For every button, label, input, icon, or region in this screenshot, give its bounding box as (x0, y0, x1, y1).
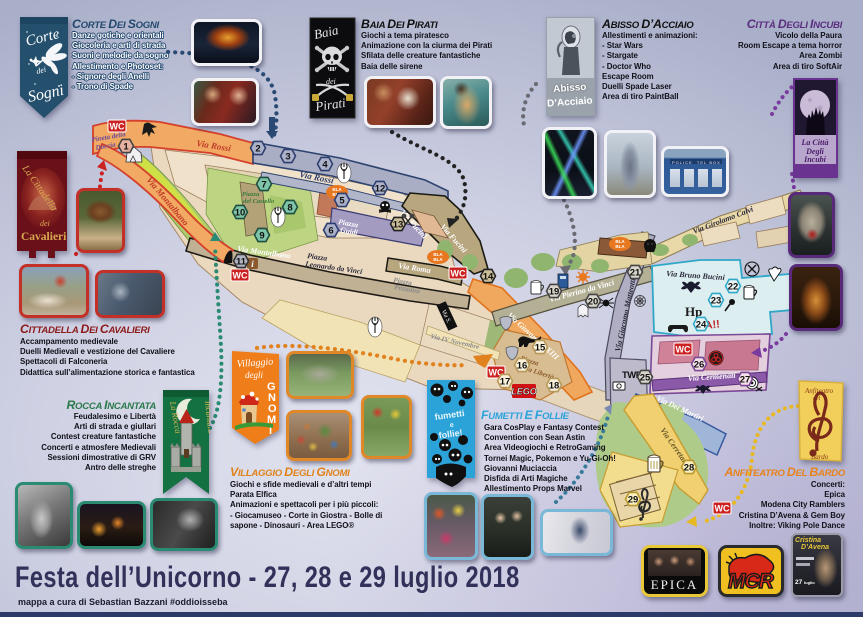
svg-text:La Città: La Città (801, 138, 829, 147)
svg-text:19: 19 (549, 286, 560, 297)
svg-text:1: 1 (123, 141, 129, 152)
svg-text:WC: WC (676, 345, 691, 355)
svg-text:Cavalieri: Cavalieri (21, 231, 67, 243)
svg-text:6: 6 (328, 225, 333, 236)
svg-text:10: 10 (235, 207, 246, 218)
svg-text:12: 12 (375, 183, 386, 194)
svg-text:LEGO: LEGO (511, 387, 537, 397)
svg-text:11: 11 (236, 256, 247, 267)
svg-text:WC: WC (233, 271, 248, 281)
svg-text:Abisso: Abisso (553, 82, 587, 95)
svg-text:dei: dei (326, 77, 336, 86)
svg-text:18: 18 (549, 380, 560, 391)
svg-text:Piazza: Piazza (242, 191, 260, 198)
svg-text:24: 24 (696, 319, 707, 330)
svg-text:8: 8 (287, 202, 292, 213)
svg-text:17: 17 (500, 376, 511, 387)
svg-text:14: 14 (483, 271, 494, 282)
svg-text:2: 2 (255, 143, 260, 154)
svg-text:MCR: MCR (728, 570, 775, 593)
svg-text:Incubi: Incubi (803, 155, 827, 164)
svg-text:WC: WC (110, 122, 125, 132)
svg-text:3: 3 (285, 151, 290, 162)
svg-text:15: 15 (535, 342, 546, 353)
svg-text:BLA: BLA (433, 257, 443, 262)
svg-text:9: 9 (259, 230, 264, 241)
svg-text:29: 29 (628, 494, 639, 505)
svg-text:22: 22 (728, 281, 739, 292)
svg-text:23: 23 (711, 295, 722, 306)
svg-text:4: 4 (322, 159, 328, 170)
svg-text:dei: dei (40, 219, 50, 228)
svg-text:26: 26 (694, 359, 705, 370)
svg-text:13: 13 (393, 219, 404, 230)
svg-text:25: 25 (640, 372, 651, 383)
svg-text:7: 7 (261, 179, 266, 190)
svg-text:16: 16 (517, 360, 528, 371)
svg-text:del Castello: del Castello (243, 198, 275, 205)
svg-text:BLA: BLA (615, 244, 625, 249)
svg-text:5: 5 (339, 195, 345, 206)
svg-text:20: 20 (588, 296, 599, 307)
svg-text:21: 21 (630, 267, 641, 278)
svg-text:28: 28 (684, 462, 695, 473)
svg-text:27: 27 (740, 374, 751, 385)
svg-text:WC: WC (451, 269, 466, 279)
svg-text:degli: degli (245, 370, 263, 380)
